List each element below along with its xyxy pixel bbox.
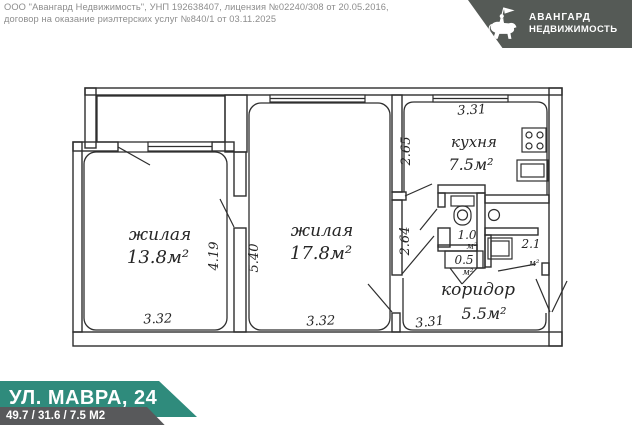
dim-room2-left: 5.40 [247, 244, 262, 273]
dim-room2-bottom: 3.32 [306, 314, 335, 330]
dim-room1-bottom: 3.32 [143, 312, 172, 328]
bath-area: 2.1 [520, 237, 540, 251]
entrance-door-right [552, 281, 567, 312]
dim-kitchen-left: 2.65 [399, 137, 414, 167]
kitchen-area: 7.5м² [448, 155, 493, 174]
sink-icon [517, 160, 548, 181]
storage-area: 0.5 [454, 253, 473, 267]
balcony-door-leaf [118, 147, 150, 165]
entrance-door-left [536, 279, 550, 312]
room1-area: 13.8м² [127, 247, 189, 268]
room2-door-leaf [368, 284, 392, 312]
address-text: УЛ. МАВРА, 24 [9, 387, 157, 409]
kitchen-label: кухня [451, 133, 497, 151]
kitchen-door-leaf [405, 184, 432, 196]
corridor-label: коридор [441, 280, 515, 300]
corridor-area: 5.5м² [461, 304, 506, 323]
balcony-area-outline [97, 96, 225, 142]
room2-area: 17.8м² [290, 243, 352, 264]
dim-corridor-bottom: 3.31 [414, 314, 444, 332]
washbasin-icon [489, 210, 500, 221]
floor-plan: жилая 13.8м² жилая 17.8м² кухня 7.5м² ко… [0, 0, 632, 425]
storage-unit: м² [462, 268, 473, 278]
bath-unit: м² [528, 259, 539, 269]
room1-label: жилая [129, 225, 192, 245]
dim-kitchen-top: 3.31 [457, 102, 487, 118]
toilet-icon [451, 196, 474, 225]
areas-text: 49.7 / 31.6 / 7.5 М2 [6, 410, 105, 422]
areas-strip: 49.7 / 31.6 / 7.5 М2 [0, 407, 168, 425]
room-labels: жилая 13.8м² жилая 17.8м² кухня 7.5м² ко… [127, 133, 541, 323]
dim-corridor-left: 2.64 [398, 227, 413, 257]
wc-door-leaf [420, 209, 437, 230]
stove-icon [522, 128, 546, 152]
room2-label: жилая [291, 221, 354, 241]
room2-outline [249, 103, 390, 330]
wc-unit: м² [466, 242, 477, 252]
dim-room1-right: 4.19 [207, 242, 222, 272]
dimension-labels: 3.31 2.65 2.64 4.19 5.40 3.32 3.32 3.31 [143, 102, 487, 331]
wc-area: 1.0 [457, 228, 476, 242]
